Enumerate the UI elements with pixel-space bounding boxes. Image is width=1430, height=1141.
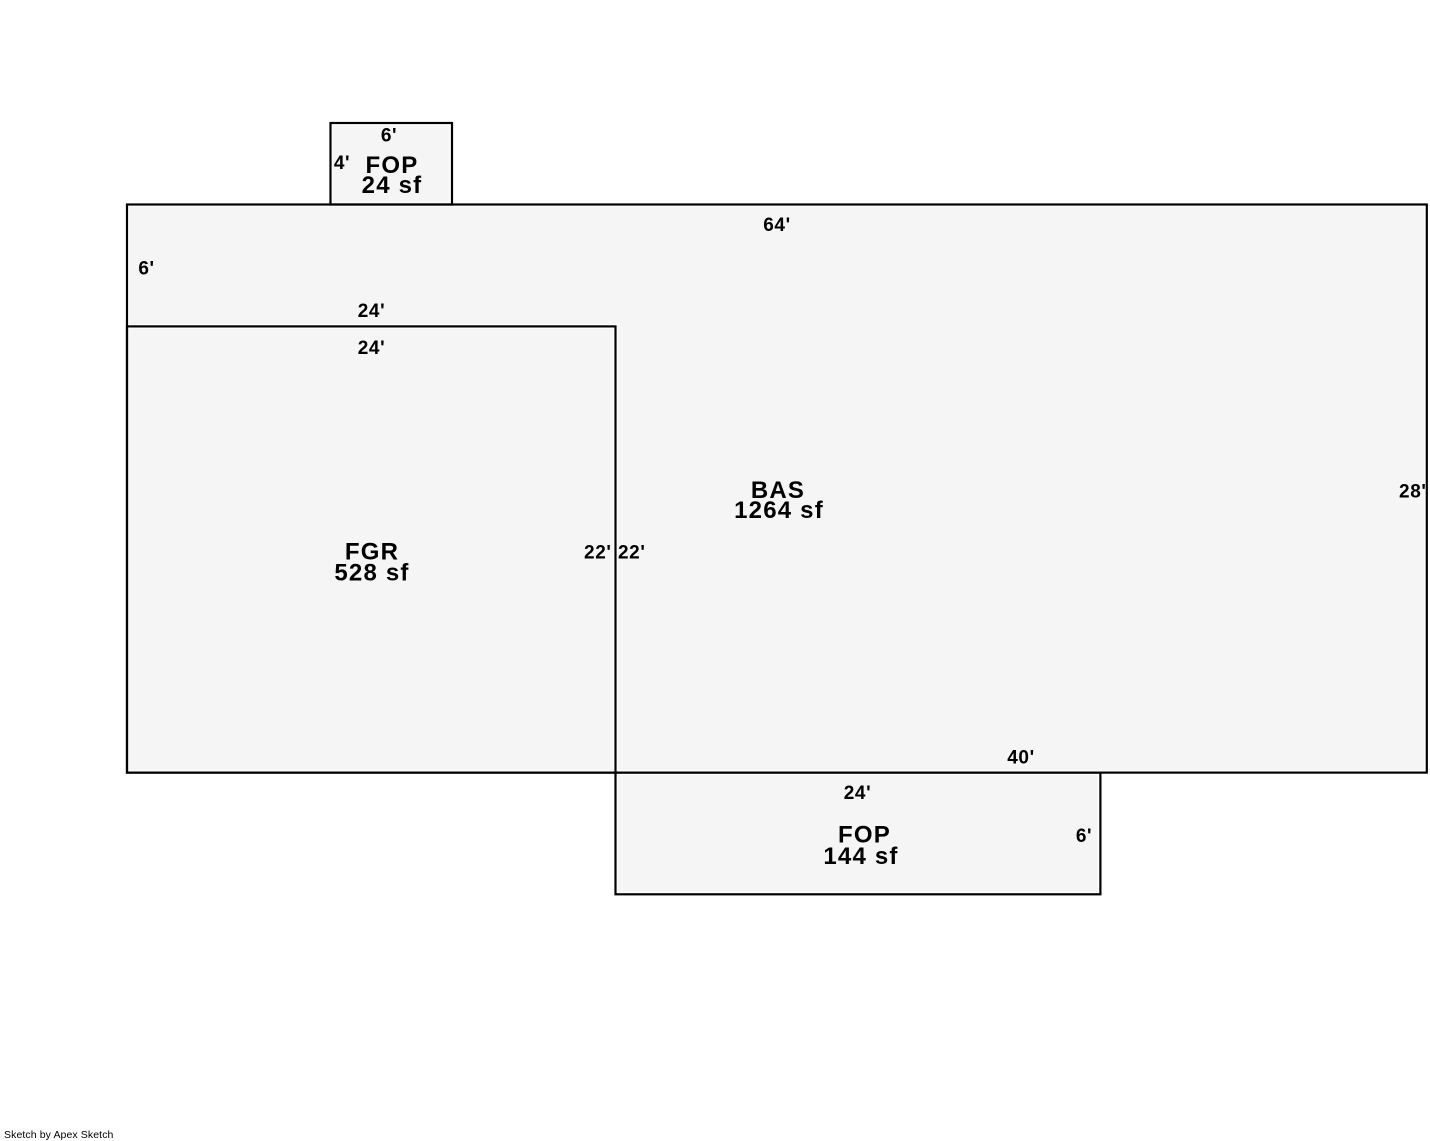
svg-text:Sketch by Apex Sketch: Sketch by Apex Sketch — [4, 1129, 114, 1141]
svg-text:1264 sf: 1264 sf — [734, 497, 824, 524]
svg-text:6': 6' — [1076, 826, 1092, 847]
svg-text:24': 24' — [358, 338, 385, 359]
svg-text:40': 40' — [1007, 748, 1034, 769]
svg-text:22': 22' — [618, 543, 645, 564]
svg-text:528 sf: 528 sf — [334, 560, 409, 587]
svg-text:4': 4' — [334, 153, 350, 174]
svg-text:6': 6' — [381, 126, 397, 147]
svg-text:24': 24' — [844, 783, 871, 804]
svg-text:28': 28' — [1399, 482, 1426, 503]
svg-text:22': 22' — [584, 543, 611, 564]
svg-text:64': 64' — [763, 215, 790, 236]
svg-text:24': 24' — [358, 301, 385, 322]
svg-text:6': 6' — [138, 259, 154, 280]
svg-text:144 sf: 144 sf — [823, 843, 898, 870]
svg-text:24 sf: 24 sf — [362, 172, 423, 199]
